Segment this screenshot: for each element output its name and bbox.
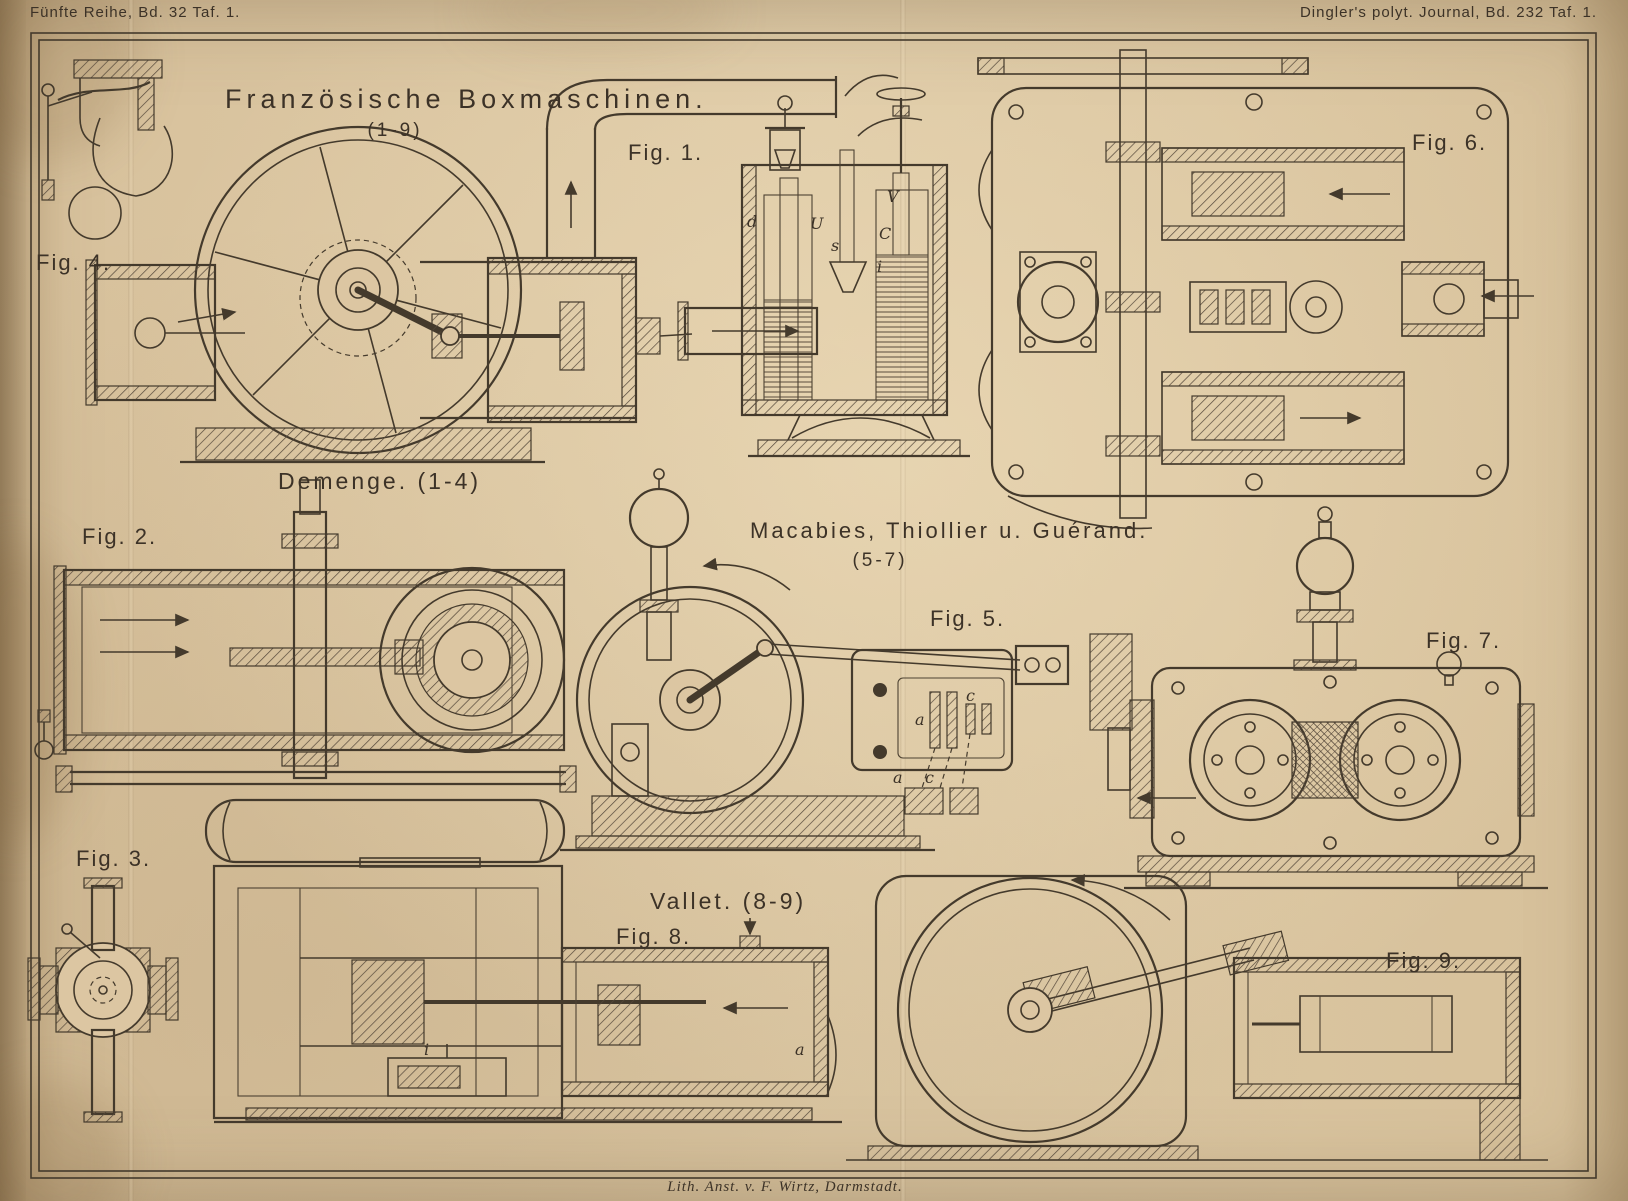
fig5-label: Fig. 5. (930, 606, 1005, 632)
fig5-part-label-a2: a (893, 768, 903, 787)
section-vallet: Vallet. (8-9) (650, 888, 806, 915)
fig4-drawing (42, 60, 172, 239)
fig7-drawing (1108, 507, 1548, 888)
fig8-part-label-a: a (795, 1040, 805, 1059)
fig2-label: Fig. 2. (82, 524, 157, 550)
fig8-part-label-i: i (424, 1040, 429, 1059)
fig4-label: Fig. 4. (36, 250, 111, 276)
fig1-part-label-i: i (877, 257, 882, 276)
fig1-part-label-c: C (879, 224, 891, 243)
fig6-drawing (978, 50, 1534, 528)
fig5-part-label-a1: a (915, 710, 925, 729)
fig1-label: Fig. 1. (628, 140, 703, 166)
fig3-label: Fig. 3. (76, 846, 151, 872)
fig1-drawing (678, 75, 970, 456)
fig6-label: Fig. 6. (1412, 130, 1487, 156)
section-vallet-range: (8-9) (743, 888, 807, 914)
fig1-part-label-u: U (810, 214, 823, 233)
fig5-part-label-c2: c (925, 768, 934, 787)
fig1-part-label-s: s (831, 236, 839, 255)
plate-title-range: (1-9) (225, 120, 565, 142)
section-macabies-range: (5-7) (800, 550, 960, 572)
section-vallet-name: Vallet. (650, 888, 733, 914)
section-demenge-range: (1-4) (418, 468, 482, 494)
header-right: Dingler's polyt. Journal, Bd. 232 Taf. 1… (1300, 4, 1597, 21)
fig9-label: Fig. 9. (1386, 948, 1461, 974)
lithographer-credit: Lith. Anst. v. F. Wirtz, Darmstadt. (620, 1179, 950, 1196)
plate-drawing (0, 0, 1628, 1201)
fig1-part-label-v: V (887, 187, 899, 206)
section-macabies-name: Macabies, Thiollier u. Guérand. (750, 518, 1148, 544)
fig5-part-label-c1: c (966, 686, 975, 705)
header-left: Fünfte Reihe, Bd. 32 Taf. 1. (30, 4, 240, 21)
plate-page: Fünfte Reihe, Bd. 32 Taf. 1. Dingler's p… (0, 0, 1628, 1201)
fig1-part-label-d: d (747, 212, 757, 231)
section-demenge-name: Demenge. (278, 468, 408, 494)
section-demenge: Demenge. (1-4) (278, 468, 481, 495)
plate-title: Französische Boxmaschinen. (225, 84, 565, 115)
fig9-drawing (846, 876, 1548, 1160)
fig3-drawing (28, 878, 178, 1122)
fig8-label: Fig. 8. (616, 924, 691, 950)
fig7-label: Fig. 7. (1426, 628, 1501, 654)
